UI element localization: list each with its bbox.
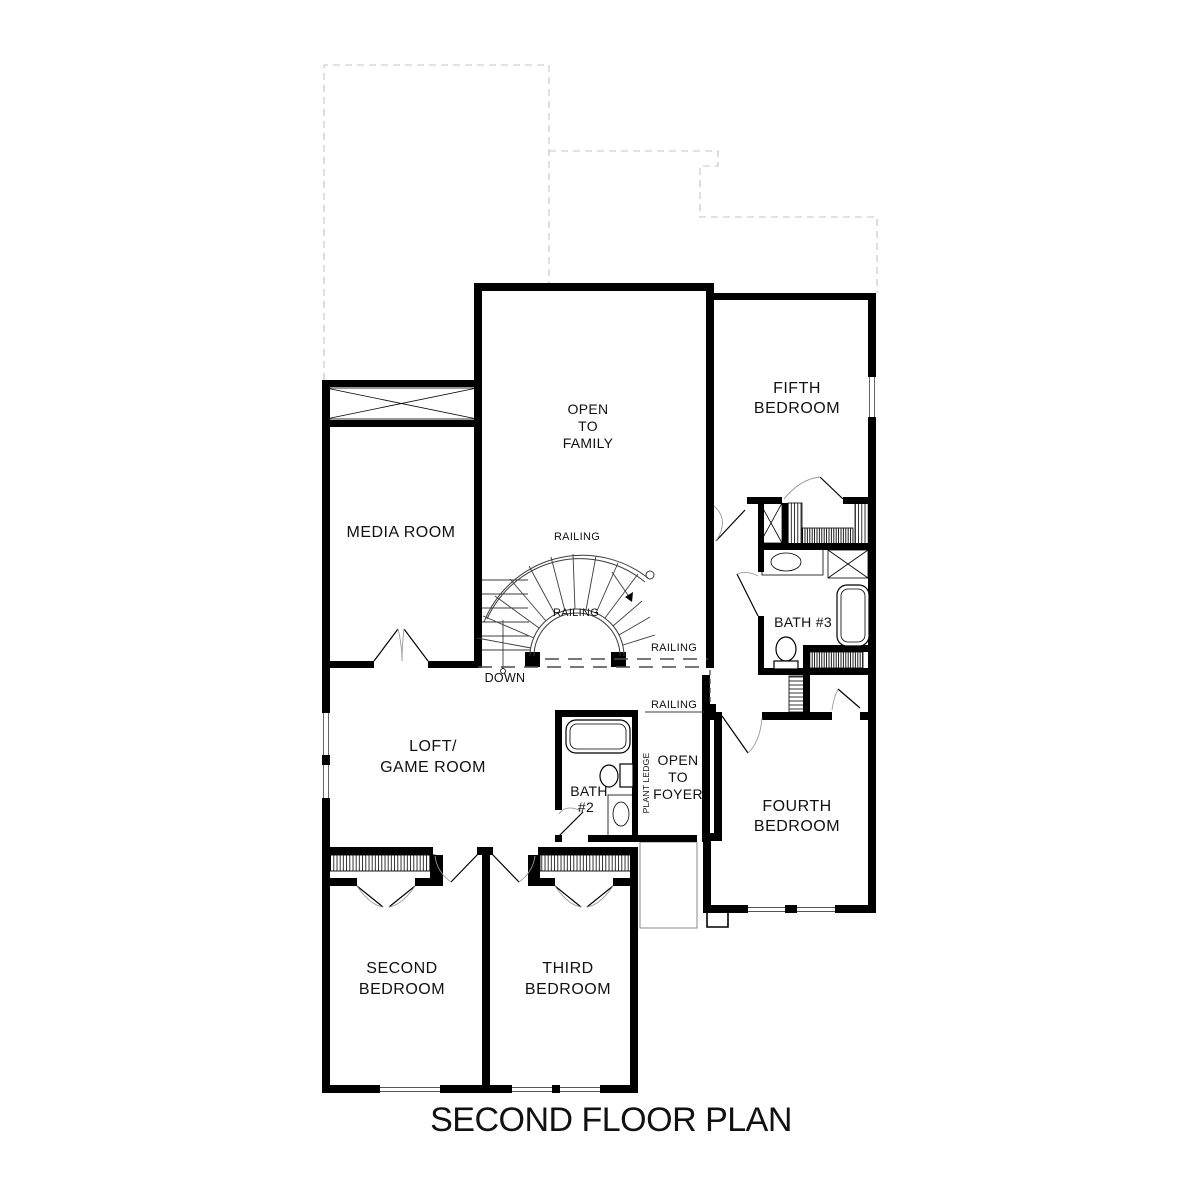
label-media-room: MEDIA ROOM <box>346 524 455 541</box>
label-railing-inner: RAILING <box>553 607 599 619</box>
linen-shelves <box>789 676 805 712</box>
label-fourth-bedroom: FOURTH <box>762 798 831 815</box>
exterior-step <box>707 913 728 927</box>
svg-text:BEDROOM: BEDROOM <box>754 818 840 835</box>
svg-text:BEDROOM: BEDROOM <box>525 981 611 998</box>
svg-text:FAMILY: FAMILY <box>563 435 614 451</box>
label-railing-landing: RAILING <box>651 642 697 654</box>
label-bath-2: BATH <box>570 783 608 799</box>
label-third-bedroom: THIRD <box>542 960 593 977</box>
svg-text:TO: TO <box>668 769 688 785</box>
label-railing-top: RAILING <box>554 531 600 543</box>
svg-text:TO: TO <box>578 418 598 434</box>
label-fifth-bedroom: FIFTH <box>773 380 821 397</box>
svg-text:#2: #2 <box>578 799 594 815</box>
stairs <box>477 554 710 712</box>
page-title: SECOND FLOOR PLAN <box>430 1101 792 1139</box>
label-plant-ledge: PLANT LEDGE <box>641 753 651 814</box>
svg-text:BEDROOM: BEDROOM <box>359 981 445 998</box>
svg-text:BEDROOM: BEDROOM <box>754 400 840 417</box>
label-loft-game-room: LOFT/ <box>409 738 457 755</box>
floor-plan-drawing: MEDIA ROOM OPEN TO FAMILY FIFTH BEDROOM … <box>0 0 1200 1200</box>
roof-outline-dashed <box>324 65 877 380</box>
floor-plan-canvas: MEDIA ROOM OPEN TO FAMILY FIFTH BEDROOM … <box>0 0 1200 1200</box>
label-bath-3: BATH #3 <box>774 614 832 630</box>
label-open-to-foyer: OPEN <box>658 752 699 768</box>
down-arrow <box>612 572 630 598</box>
closet-shelf-hatch <box>330 503 870 871</box>
shower-icon <box>828 550 868 578</box>
media-room-soffit-x <box>326 388 477 419</box>
svg-text:GAME ROOM: GAME ROOM <box>380 759 486 776</box>
labels: MEDIA ROOM OPEN TO FAMILY FIFTH BEDROOM … <box>346 380 840 1139</box>
chase-outline <box>640 842 697 928</box>
label-open-to-family: OPEN <box>568 401 609 417</box>
svg-text:FOYER: FOYER <box>653 786 703 802</box>
label-second-bedroom: SECOND <box>366 960 437 977</box>
label-down: DOWN <box>485 671 526 685</box>
label-railing-foyer: RAILING <box>651 699 697 711</box>
